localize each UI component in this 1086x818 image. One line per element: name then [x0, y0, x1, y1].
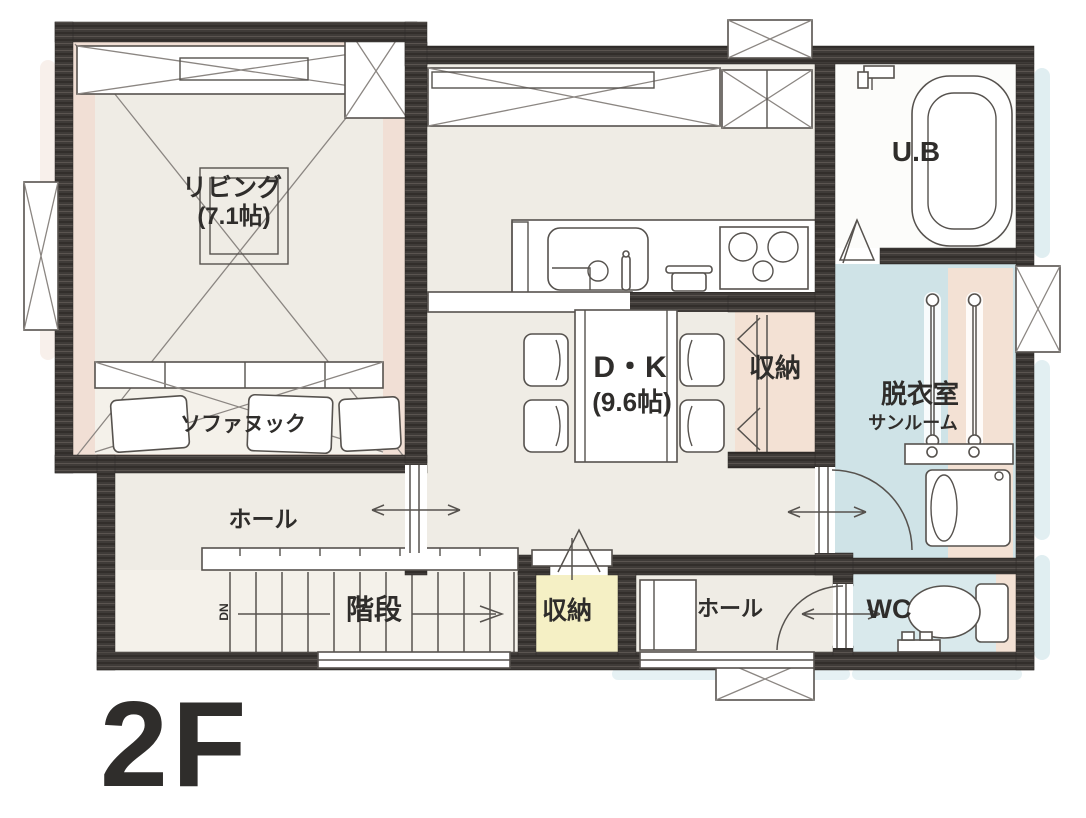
chair [524, 334, 568, 386]
chair [680, 400, 724, 452]
washing-machine [926, 470, 1010, 546]
storage-center-label: 収納 [542, 596, 592, 625]
dining-table [575, 310, 677, 462]
storage-east-label: 収納 [749, 353, 801, 383]
unit-bath-label: U.B [892, 136, 940, 167]
dk-size: (9.6帖) [592, 387, 671, 417]
hall-east-cabinet [640, 580, 696, 650]
window-top-right [728, 20, 812, 58]
counter-ledge [428, 292, 632, 312]
wc-label: WC [867, 594, 912, 624]
dressing-sub-label: サンルーム [868, 413, 957, 433]
window-left [24, 182, 58, 330]
stairs-dn-label: DN [217, 603, 231, 620]
stairs-label: 階段 [346, 593, 402, 625]
hall-west-label: ホール [229, 506, 298, 532]
floor-plan-page: リビング (7.1帖) ソファヌック D・K (9.6帖) 収納 U.B 脱衣室… [0, 0, 1086, 818]
counter-fixture [666, 266, 712, 273]
living-label: リビング [182, 174, 282, 202]
floor-plan-drawing: リビング (7.1帖) ソファヌック D・K (9.6帖) 収納 U.B 脱衣室… [0, 0, 1086, 818]
dressing-label: 脱衣室 [881, 379, 959, 409]
sofa-nook-label: ソファヌック [180, 413, 306, 436]
hall-east-label: ホール [697, 596, 763, 621]
dressing-shelf [905, 444, 1013, 464]
window-bottom-east [640, 652, 814, 668]
stairs-rail [202, 548, 518, 570]
stairs-floor [115, 570, 518, 652]
window-bottom-hall [318, 652, 510, 668]
living-size: (7.1帖) [197, 203, 270, 230]
window-right [1016, 266, 1060, 352]
chair [524, 400, 568, 452]
sink-faucet [622, 256, 630, 290]
dk-label: D・K [593, 351, 667, 384]
floor-label: 2F [100, 676, 250, 812]
sofa-nook [95, 362, 401, 453]
chair [680, 334, 724, 386]
